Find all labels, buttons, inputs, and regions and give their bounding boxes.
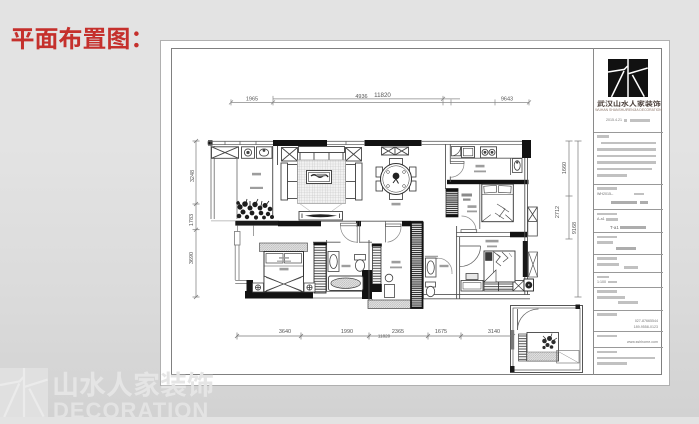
svg-text:9168: 9168: [572, 222, 578, 234]
svg-text:3640: 3640: [279, 329, 291, 335]
svg-text:11820: 11820: [378, 334, 391, 339]
svg-text:1783: 1783: [189, 214, 195, 226]
svg-text:4936: 4936: [355, 94, 367, 100]
svg-text:1675: 1675: [435, 329, 447, 335]
svg-text:3248: 3248: [190, 170, 196, 182]
svg-text:2365: 2365: [392, 329, 404, 335]
svg-text:9643: 9643: [501, 97, 513, 103]
svg-text:1660: 1660: [562, 162, 568, 174]
svg-text:1965: 1965: [246, 97, 258, 103]
svg-text:3140: 3140: [488, 329, 500, 335]
svg-text:1990: 1990: [341, 329, 353, 335]
svg-text:3690: 3690: [189, 252, 195, 264]
svg-text:11820: 11820: [374, 92, 391, 99]
svg-text:2712: 2712: [555, 206, 561, 218]
